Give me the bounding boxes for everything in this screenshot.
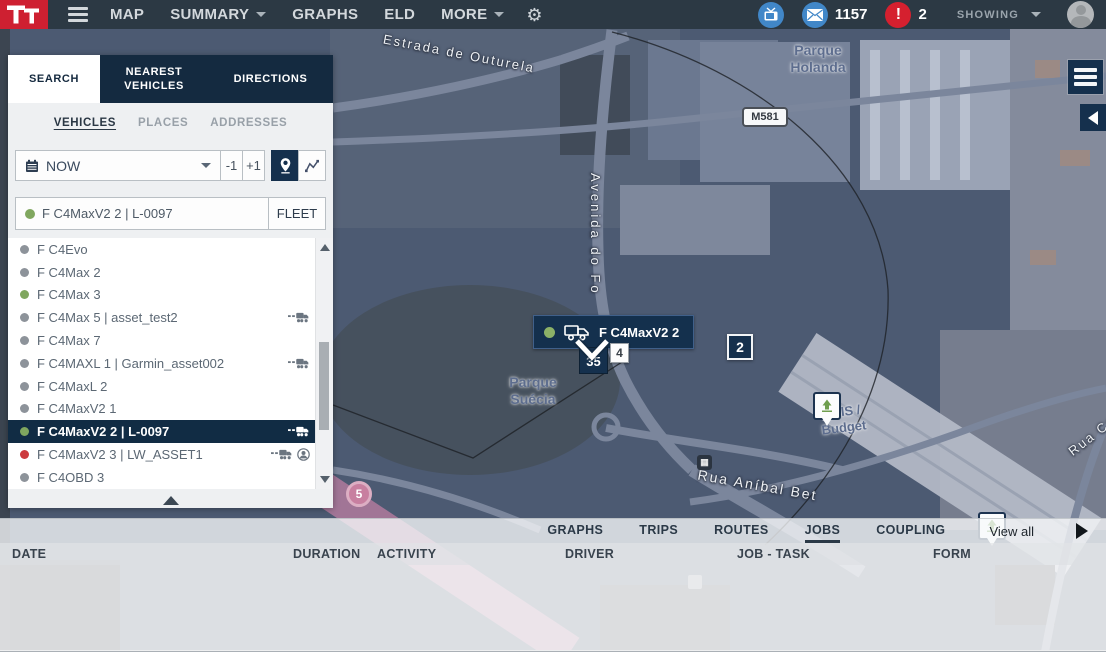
search-subtab[interactable]: ADDRESSES xyxy=(210,117,287,141)
menu-label: SUMMARY xyxy=(170,6,249,23)
map-layers-menu-button[interactable] xyxy=(1068,60,1103,94)
truck-icon xyxy=(288,426,310,437)
vehicle-name: F C4MaxL 2 xyxy=(37,379,107,394)
truck-icon xyxy=(563,323,591,341)
menu-label: MAP xyxy=(110,6,144,23)
chevron-left-icon xyxy=(1088,111,1098,125)
vehicle-list-item[interactable]: F C4OBD 3 xyxy=(8,466,316,489)
scroll-up-arrow-icon[interactable] xyxy=(320,244,330,251)
topbar-menu-item[interactable]: GRAPHS xyxy=(292,6,358,23)
calendar-icon xyxy=(25,159,39,173)
truck-icon xyxy=(288,358,310,369)
showing-label: SHOWING xyxy=(957,9,1019,21)
user-avatar[interactable] xyxy=(1067,1,1094,28)
bottom-panel-tab[interactable]: GRAPHS xyxy=(547,519,603,543)
column-header: DRIVER xyxy=(565,543,614,565)
panel-collapse-button[interactable] xyxy=(8,489,333,511)
alerts-button[interactable]: ! xyxy=(885,2,911,28)
highway-number-badge: 5 xyxy=(346,481,372,507)
bottom-panel-tab[interactable]: JOBS xyxy=(805,519,841,543)
column-header: DURATION xyxy=(293,543,360,565)
vehicle-name: F C4OBD 3 xyxy=(37,470,104,485)
vehicle-search-value: F C4MaxV2 2 | L-0097 xyxy=(42,206,173,221)
tab-label: SEARCH xyxy=(29,72,79,86)
vehicle-search-input[interactable]: F C4MaxV2 2 | L-0097 xyxy=(16,198,268,229)
status-dot xyxy=(20,473,29,482)
status-dot xyxy=(544,327,555,338)
column-header: FORM xyxy=(933,543,971,565)
row-icons xyxy=(288,426,310,437)
exclamation-icon: ! xyxy=(896,6,901,24)
vehicle-name: F C4Max 2 xyxy=(37,265,101,280)
search-panel-body: VEHICLES PLACES ADDRESSES NOW -1 +1 xyxy=(8,103,333,508)
search-subtab[interactable]: PLACES xyxy=(138,117,188,141)
step-forward-button[interactable]: +1 xyxy=(242,150,265,181)
envelope-icon xyxy=(807,9,823,21)
status-dot xyxy=(20,268,29,277)
show-position-button[interactable] xyxy=(271,150,299,181)
fleet-button[interactable]: FLEET xyxy=(268,198,325,229)
status-dot xyxy=(20,382,29,391)
menu-label: GRAPHS xyxy=(292,6,358,23)
scroll-down-arrow-icon[interactable] xyxy=(320,476,330,483)
vehicle-name: F C4MaxV2 1 xyxy=(37,401,116,416)
tv-icon xyxy=(763,7,779,22)
time-controls: NOW -1 +1 xyxy=(15,150,326,181)
status-dot xyxy=(20,336,29,345)
tv-dashboard-button[interactable] xyxy=(758,2,784,28)
column-header: DATE xyxy=(12,543,46,565)
vehicle-rows: F C4Evo F C4Max 2 xyxy=(8,238,316,489)
search-subtabs: VEHICLES PLACES ADDRESSES xyxy=(8,103,333,141)
vehicle-name: F C4MaxV2 2 xyxy=(599,325,679,340)
vehicle-list-item[interactable]: F C4Max 5 | asset_test2 xyxy=(8,306,316,329)
green-arrow-icon xyxy=(819,398,835,414)
topbar-menu-item[interactable]: SUMMARY xyxy=(170,6,266,23)
step-back-button[interactable]: -1 xyxy=(220,150,243,181)
time-range-dropdown[interactable]: NOW xyxy=(15,150,221,181)
vehicle-list-item[interactable]: F C4MaxV2 3 | LW_ASSET1 xyxy=(8,443,316,466)
messages-count: 1157 xyxy=(835,6,868,23)
status-dot xyxy=(20,290,29,299)
vehicle-list-item[interactable]: F C4MaxV2 1 xyxy=(8,398,316,421)
jobs-table-body xyxy=(0,565,1106,651)
expand-panel-arrow-icon[interactable] xyxy=(1076,523,1088,539)
status-dot xyxy=(20,404,29,413)
vehicle-name: F C4Evo xyxy=(37,242,88,257)
search-panel-tab[interactable]: SEARCH xyxy=(8,55,100,103)
search-subtab[interactable]: VEHICLES xyxy=(54,117,116,141)
tab-label: NEAREST VEHICLES xyxy=(106,65,202,94)
map-sidebar-collapse-button[interactable] xyxy=(1080,104,1106,131)
vehicle-name: F C4Max 7 xyxy=(37,333,101,348)
view-all-link[interactable]: View all xyxy=(989,524,1034,539)
jobs-table-header: DATE DURATION ACTIVITY DRIVER JOB - TASK… xyxy=(0,543,1106,565)
top-navigation-bar: MAP SUMMARY GRAPHS ELD MORE ⚙ xyxy=(0,0,1106,29)
main-menu-hamburger-icon[interactable] xyxy=(68,7,88,22)
search-panel-tabs: SEARCH NEAREST VEHICLES DIRECTIONS xyxy=(8,55,333,103)
chevron-down-icon xyxy=(494,12,504,17)
vehicle-list-item[interactable]: F C4MAXL 1 | Garmin_asset002 xyxy=(8,352,316,375)
bottom-panel-tabs: GRAPHS TRIPS ROUTES JOBS COUPLING View a… xyxy=(0,518,1106,543)
time-range-value: NOW xyxy=(46,158,80,174)
status-dot xyxy=(20,427,29,436)
alerts-count: 2 xyxy=(918,6,926,23)
vehicle-name: F C4MaxV2 2 | L-0097 xyxy=(37,424,169,439)
vehicle-list-item[interactable]: F C4MaxV2 2 | L-0097 xyxy=(8,420,316,443)
gear-icon[interactable]: ⚙ xyxy=(526,6,542,24)
topbar-menu-item[interactable]: MAP xyxy=(110,6,144,23)
bottom-data-panel: GRAPHS TRIPS ROUTES JOBS COUPLING View a… xyxy=(0,518,1106,652)
vehicle-cluster-marker[interactable]: 2 xyxy=(727,334,753,360)
location-pin-icon xyxy=(279,157,292,174)
row-icons xyxy=(288,358,310,369)
menu-label: ELD xyxy=(384,6,415,23)
transit-station-icon: ▦ xyxy=(697,455,712,470)
vehicle-list-item[interactable]: F C4Max 3 xyxy=(8,284,316,307)
status-dot xyxy=(20,313,29,322)
chevron-down-icon xyxy=(1031,12,1041,17)
vehicle-search-row: F C4MaxV2 2 | L-0097 FLEET xyxy=(15,197,326,230)
fleet-tracking-app: Estrada de Outurela Parque Holanda M581 … xyxy=(0,0,1106,652)
search-panel-tab[interactable]: DIRECTIONS xyxy=(208,55,333,103)
vehicle-list-item[interactable]: F C4Max 7 xyxy=(8,329,316,352)
showing-dropdown[interactable]: SHOWING xyxy=(957,9,1041,21)
topbar-menu-item[interactable]: MORE xyxy=(441,6,504,23)
bottom-panel-tab[interactable]: ROUTES xyxy=(714,519,769,543)
topbar-right-cluster: 1157 ! 2 SHOWING xyxy=(758,1,1106,28)
main-menu: MAP SUMMARY GRAPHS ELD MORE xyxy=(110,6,504,23)
row-icons xyxy=(271,448,310,461)
search-panel: SEARCH NEAREST VEHICLES DIRECTIONS VEHIC… xyxy=(8,55,333,508)
scrollbar-thumb[interactable] xyxy=(319,342,329,430)
brand-logo[interactable] xyxy=(0,0,48,29)
messages-button[interactable] xyxy=(802,2,828,28)
vehicle-list-scrollbar[interactable] xyxy=(315,238,333,489)
chevron-down-icon xyxy=(201,163,211,168)
vehicle-list-item[interactable]: F C4Evo xyxy=(8,238,316,261)
vehicle-list-item[interactable]: F C4Max 2 xyxy=(8,261,316,284)
status-dot xyxy=(20,450,29,459)
tab-label: DIRECTIONS xyxy=(234,72,308,86)
chevron-up-icon xyxy=(163,496,179,505)
row-icons xyxy=(288,312,310,323)
search-panel-tab[interactable]: NEAREST VEHICLES xyxy=(100,55,208,103)
truck-icon xyxy=(288,312,310,323)
vehicle-name: F C4MaxV2 3 | LW_ASSET1 xyxy=(37,447,203,462)
vehicle-list-item[interactable]: F C4MaxL 2 xyxy=(8,375,316,398)
status-dot xyxy=(25,209,35,219)
column-header: JOB - TASK xyxy=(737,543,810,565)
show-route-button[interactable] xyxy=(298,150,326,181)
menu-label: MORE xyxy=(441,6,487,23)
bottom-panel-tab[interactable]: TRIPS xyxy=(639,519,678,543)
vehicle-list: F C4Evo F C4Max 2 xyxy=(8,238,333,489)
column-header: ACTIVITY xyxy=(377,543,436,565)
status-dot xyxy=(20,359,29,368)
vehicle-name: F C4Max 5 | asset_test2 xyxy=(37,310,178,325)
route-icon xyxy=(304,159,320,173)
vehicle-name: F C4MAXL 1 | Garmin_asset002 xyxy=(37,356,224,371)
chevron-down-icon xyxy=(256,12,266,17)
numbered-place-marker[interactable]: 4 xyxy=(610,343,629,363)
road-shield-m581: M581 xyxy=(742,107,788,127)
vehicle-speed-marker[interactable]: 35 xyxy=(579,347,608,374)
status-dot xyxy=(20,245,29,254)
bottom-panel-tab[interactable]: COUPLING xyxy=(876,519,945,543)
truck-icon xyxy=(271,449,293,460)
topbar-menu-item[interactable]: ELD xyxy=(384,6,415,23)
place-pin-marker[interactable] xyxy=(813,392,841,420)
bottom-tabs-group: GRAPHS TRIPS ROUTES JOBS COUPLING xyxy=(547,519,945,543)
driver-icon xyxy=(297,448,310,461)
vehicle-name: F C4Max 3 xyxy=(37,287,101,302)
